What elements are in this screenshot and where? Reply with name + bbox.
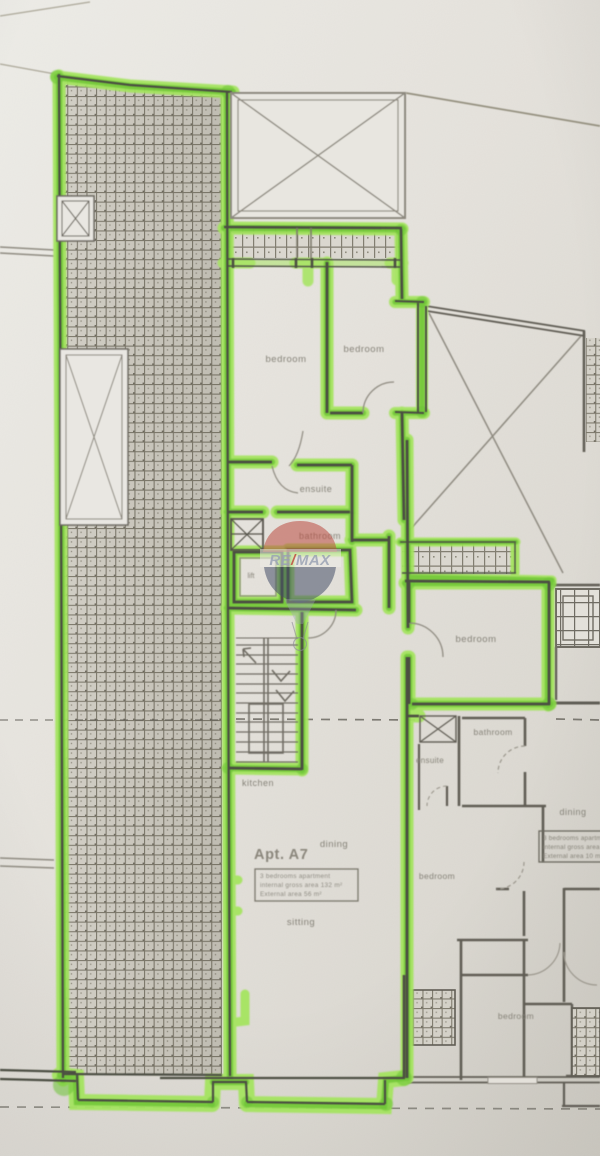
svg-text:RE/MAX: RE/MAX [269,552,331,569]
svg-text:sitting: sitting [287,917,315,928]
svg-text:lift: lift [248,573,255,580]
svg-text:internal gross area 132 m²: internal gross area 132 m² [260,882,342,889]
svg-text:bedroom: bedroom [456,634,497,645]
svg-text:bedroom: bedroom [344,344,385,355]
svg-text:bedroom: bedroom [266,354,307,365]
svg-text:External area 10 m²: External area 10 m² [543,853,600,860]
svg-text:External area 56 m²: External area 56 m² [260,891,322,898]
svg-text:bedroom: bedroom [498,1011,534,1021]
svg-text:ensuite: ensuite [416,756,444,765]
svg-text:internal gross area: internal gross area [543,844,600,851]
svg-text:ensuite: ensuite [300,484,333,494]
svg-text:bedroom: bedroom [419,871,455,881]
svg-text:3 bedrooms apartment: 3 bedrooms apartment [260,873,330,880]
svg-text:dining: dining [320,839,348,850]
svg-text:3 bedrooms apartm: 3 bedrooms apartm [543,835,600,842]
svg-text:Apt. A7: Apt. A7 [254,847,308,863]
svg-text:bathroom: bathroom [473,727,512,737]
svg-text:dining: dining [559,807,586,817]
svg-text:kitchen: kitchen [242,778,274,788]
